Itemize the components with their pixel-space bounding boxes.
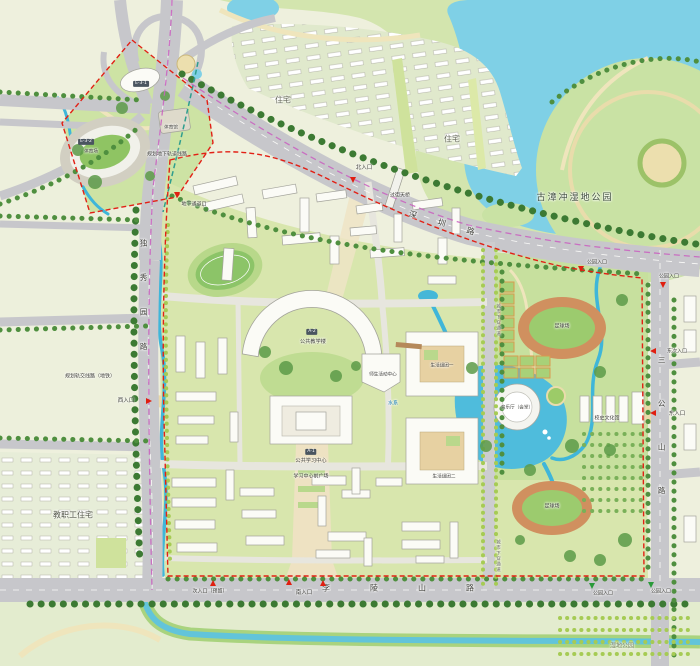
label-residential-b: 住宅 [444, 136, 460, 145]
label-learning-plaza: 学习中心前广场 [293, 474, 328, 480]
plan-drawing [0, 0, 700, 666]
label-road-lilingshan: 李陵山路 [322, 585, 514, 594]
label-residential-a: 住宅 [275, 97, 291, 106]
label-dorm-cluster-1: 生活组团一 [431, 363, 454, 368]
label-north-entrance: 北入口 [356, 165, 373, 171]
label-planned-metro: 规划轨交线路（地铁） [65, 374, 115, 380]
south-entrance-arrow-icon [286, 579, 292, 585]
label-faculty-housing: 教职工住宅 [53, 512, 93, 521]
label-teaching-building: 公共教学楼 [300, 340, 326, 346]
south-reserved-arrow-icon [210, 580, 216, 586]
badge-a1: A-1 [305, 449, 316, 455]
label-east-secondary-entrance: 东次入口 [667, 349, 687, 355]
west-entrance-arrow-icon [146, 398, 152, 404]
label-football-field-se: 足球场 [544, 504, 559, 510]
label-learning-center: 公共学习中心 [295, 459, 326, 465]
label-stadium: 体育场 [84, 149, 98, 154]
badge-e31: E-3-1 [133, 81, 149, 87]
label-underpass-north: 城市下穿通道 [495, 304, 500, 337]
label-south-reserved-entrance: 次入口（预留） [192, 589, 227, 595]
campus-master-plan: 古漳冲湿地公园 住宅 住宅 教职工住宅 深圳路 独秀园路 三公山路 李陵山路 城… [0, 0, 700, 666]
label-west-entrance: 西入口 [118, 398, 135, 404]
park-entrance-arrow-b-icon [660, 282, 666, 288]
learning-center-building [270, 396, 352, 444]
label-footbridge: 过街天桥 [390, 193, 410, 199]
label-history-hall: 校史文化馆 [594, 416, 619, 422]
label-tunnel-entrance: 地下通道口 [181, 202, 206, 208]
label-road-duxiuyuan: 独秀园路 [139, 239, 147, 377]
label-dorm-cluster-2: 生活组团二 [433, 474, 456, 479]
label-park-entrance-c: 公园入口 [593, 591, 613, 597]
label-music-hall: 音乐厅（会堂） [501, 405, 533, 410]
label-south-entrance: 南入口 [296, 590, 313, 596]
label-park-entrance-b: 公园入口 [659, 274, 679, 280]
south-axis-arrow-icon [320, 580, 326, 586]
label-activity-center: 师生活动中心 [369, 372, 397, 377]
badge-e32: E-3-2 [78, 139, 94, 145]
east-entrance-arrow-icon [650, 410, 656, 416]
label-park-entrance-a: 公园入口 [587, 260, 607, 266]
label-planned-rail: 规划地下轨道线路 [147, 152, 187, 158]
park-entrance-arrow-d-icon [648, 582, 654, 588]
tunnel-arrow-icon [174, 192, 180, 198]
label-underpass-south: 城市下穿通道 [495, 540, 500, 573]
label-park-entrance-d: 公园入口 [651, 589, 671, 595]
label-gymnasium: 体育馆 [164, 125, 178, 130]
label-water-system: 水系 [388, 401, 398, 407]
label-wetland-park: 古漳冲湿地公园 [536, 194, 613, 204]
badge-a2: A-2 [306, 329, 317, 335]
label-football-field-park: 足球场 [554, 324, 569, 330]
east-secondary-arrow-icon [650, 348, 656, 354]
north-entrance-arrow-icon [350, 177, 356, 183]
park-entrance-arrow-c-icon [589, 583, 595, 589]
park-entrance-arrow-a-icon [578, 266, 584, 272]
label-road-sangongshan: 三公山路 [657, 356, 665, 530]
label-east-entrance: 东入口 [669, 411, 686, 417]
label-bottom-wetland-park: 湿地公园 [610, 644, 634, 651]
